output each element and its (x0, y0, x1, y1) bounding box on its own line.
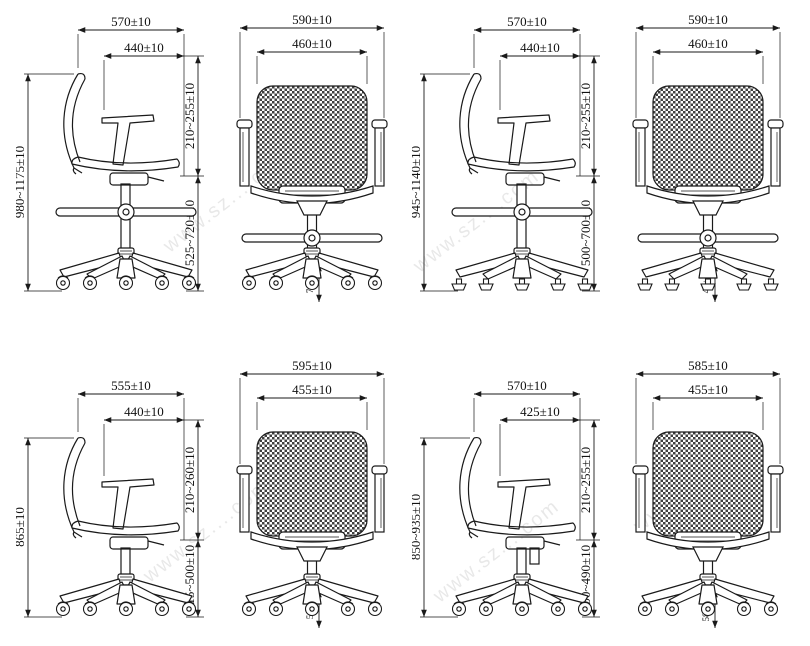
figure-drafting-chair-casters-front: 590±10 460±10 70±5 (214, 10, 409, 316)
dim-backrest-width: 455±10 (292, 382, 332, 397)
dim-overall-width: 595±10 (292, 358, 332, 373)
dim-overall-depth: 570±10 (507, 14, 547, 29)
dim-overall-width: 585±10 (688, 358, 728, 373)
dim-overall-height: 980~1175±10 (16, 146, 27, 218)
dim-backrest-height: 210~255±10 (182, 83, 197, 149)
figure-drafting-chair-glides-side: 570±10 440±10 945~1140±10 210~255±10 500… (412, 10, 607, 316)
dim-backrest-height: 210~255±10 (578, 83, 593, 149)
dim-overall-height: 865±10 (16, 507, 27, 547)
figure-task-chair-b-front: 585±10 455±10 58mm (610, 336, 805, 642)
dim-backrest-height: 210~255±10 (578, 447, 593, 513)
dim-overall-height: 850~935±10 (412, 494, 423, 560)
dim-backrest-width: 455±10 (688, 382, 728, 397)
figure-task-chair-a-front: 595±10 455±10 50±5 (214, 336, 409, 642)
figure-task-chair-b-side: 570±10 425±10 850~935±10 210~255±10 400~… (412, 336, 607, 642)
figure-drafting-chair-casters-side: 570±10 440±10 980~1175±10 210~255±10 525… (16, 10, 211, 316)
dim-backrest-width: 460±10 (292, 36, 332, 51)
dim-overall-depth: 570±10 (111, 14, 151, 29)
dim-overall-width: 590±10 (292, 12, 332, 27)
figure-task-chair-a-side: 555±10 440±10 865±10 210~260±10 415~500±… (16, 336, 211, 642)
dim-overall-height: 945~1140±10 (412, 146, 423, 218)
dim-armrest-width: 440±10 (520, 40, 560, 55)
dim-armrest-width: 440±10 (124, 404, 164, 419)
chair-dimension-sheet: www.sz....com www.sz....com www.sz....co… (0, 0, 810, 646)
dim-overall-width: 590±10 (688, 12, 728, 27)
dim-backrest-width: 460±10 (688, 36, 728, 51)
pump-handle (530, 548, 539, 564)
dim-armrest-width: 440±10 (124, 40, 164, 55)
dim-armrest-width: 425±10 (520, 404, 560, 419)
dim-backrest-height: 210~260±10 (182, 447, 197, 513)
dim-overall-depth: 570±10 (507, 378, 547, 393)
figure-drafting-chair-glides-front: 590±10 460±10 40±5 (610, 10, 805, 316)
dim-overall-depth: 555±10 (111, 378, 151, 393)
